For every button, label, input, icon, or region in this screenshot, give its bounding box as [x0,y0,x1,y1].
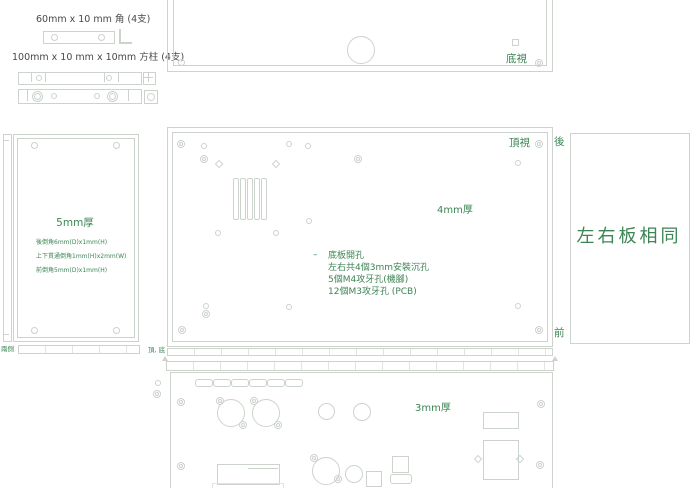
mount-hole [215,230,221,236]
top-bottom-edge-label: 頂, 底 [148,347,165,354]
xlr-screw-hole [310,454,318,462]
bar-divider [118,73,119,82]
mount-hole [535,59,543,67]
baseplate-note-line-1: 底板開孔 [328,251,364,261]
panel-edge-strip [166,361,554,371]
chamfer-note-line-3: 前倒角5mm(D)x1mm(H) [36,268,107,275]
rear-panel-thickness-label: 3mm厚 [415,403,451,415]
bar-divider [45,73,46,82]
angle-bar-hole [98,34,105,41]
bar-divider [128,90,129,101]
top-view-panel-inner [172,132,548,342]
countersunk-hole [200,155,208,163]
square-profile-hole [147,93,155,101]
countersunk-hole [202,310,210,318]
angle-bar-hole [51,34,58,41]
display-cutout-step [248,468,278,469]
fuse-cutout [483,412,519,429]
bar-end-hole [32,91,43,102]
corner-hole [535,326,543,334]
sides-edge-label: 兩側 [1,346,14,353]
mount-hole [306,218,312,224]
xlr-screw-hole [334,475,342,483]
mount-hole [178,59,185,66]
square-column-label: 100mm x 10 mm x 10mm 方柱 (4支) [12,53,184,64]
angle-bar-label: 60mm x 10 mm 角 (4支) [36,15,150,26]
front-edge-label: 前 [554,327,565,339]
bar-hole [94,93,100,99]
panel-screw-hole [177,398,185,406]
corner-hole [177,140,185,148]
iec-inlet-cutout [483,440,519,480]
chamfer-note-line-2: 上下貫通倒角1mm(H)x2mm(W) [36,254,126,261]
rear-vent-slot [231,379,249,387]
panel-screw-hole [177,462,185,470]
rca-hole [345,465,363,483]
bar-divider [27,90,28,101]
mount-hole [515,160,521,166]
top-view-thickness-label: 4mm厚 [437,205,473,217]
mount-square-hole [512,39,519,46]
bar-hole [51,93,57,99]
baseplate-note-line-2: 左右共4個3mm安裝沉孔 [328,263,429,273]
mount-hole [273,230,279,236]
vent-slot [247,178,253,220]
mount-hole [31,327,38,334]
mount-hole [203,303,209,309]
switch-cutout [392,456,409,473]
xlr-screw-hole [239,421,247,429]
vent-slot [261,178,267,220]
rear-vent-slot [195,379,213,387]
baseplate-note-line-3: 5個M4攻牙孔(機腳) [328,275,408,285]
top-view-label: 頂視 [509,137,530,149]
xlr-screw-hole [250,397,258,405]
right-panel-note: 左右板相同 [570,227,688,248]
corner-hole [178,326,186,334]
square-profile-cross [144,77,153,78]
baseplate-note-dash: – [313,250,318,260]
chamfer-note-line-1: 後倒角6mm(D)x1mm(H) [36,240,107,247]
rear-edge-label: 後 [554,136,565,148]
top-bottom-edge-strip [167,348,553,356]
side-panel-inner [17,138,135,338]
rca-hole [353,403,371,421]
side-panel-edge-strip [3,134,12,342]
corner-hole [535,140,543,148]
mount-hole [113,142,120,149]
countersunk-hole [354,155,362,163]
rear-vent-slot [285,379,303,387]
xlr-screw-hole [216,397,224,405]
mount-hole [305,143,311,149]
bottom-view-center-hole [347,36,375,64]
edge-strip-tick [4,334,9,335]
vent-slot [233,178,239,220]
bar-end-hole [107,91,118,102]
side-panel-thickness-label: 5mm厚 [13,217,137,229]
bar-hole [106,75,112,81]
mount-hole [155,380,161,386]
mount-hole [286,304,292,310]
mount-hole [286,141,292,147]
mount-hole [153,390,161,398]
bar-hole [36,75,42,81]
bar-divider [104,73,105,82]
rca-hole [318,403,335,420]
bottom-view-label: 底視 [506,53,527,65]
mount-hole [113,327,120,334]
square-profile-icon-1 [143,72,156,85]
mount-hole [201,143,207,149]
angle-profile-icon [119,29,132,44]
vent-slot [240,178,246,220]
rear-vent-slot [249,379,267,387]
mount-hole [515,303,521,309]
baseplate-note-line-4: 12個M3攻牙孔 (PCB) [328,287,417,297]
side-edge-strip [18,345,140,354]
cad-drawing-sheet: 60mm x 10 mm 角 (4支) 100mm x 10 mm x 10mm… [0,0,690,488]
edge-strip-tick [4,140,9,141]
slot-cutout [390,474,412,484]
mount-hole [31,142,38,149]
bar-divider [31,73,32,82]
display-cutout-base [212,483,284,488]
vent-slot [254,178,260,220]
switch-cutout [366,471,382,487]
xlr-screw-hole [274,421,282,429]
rear-vent-slot [213,379,231,387]
panel-screw-hole [536,461,544,469]
rear-vent-slot [267,379,285,387]
panel-screw-hole [537,400,545,408]
